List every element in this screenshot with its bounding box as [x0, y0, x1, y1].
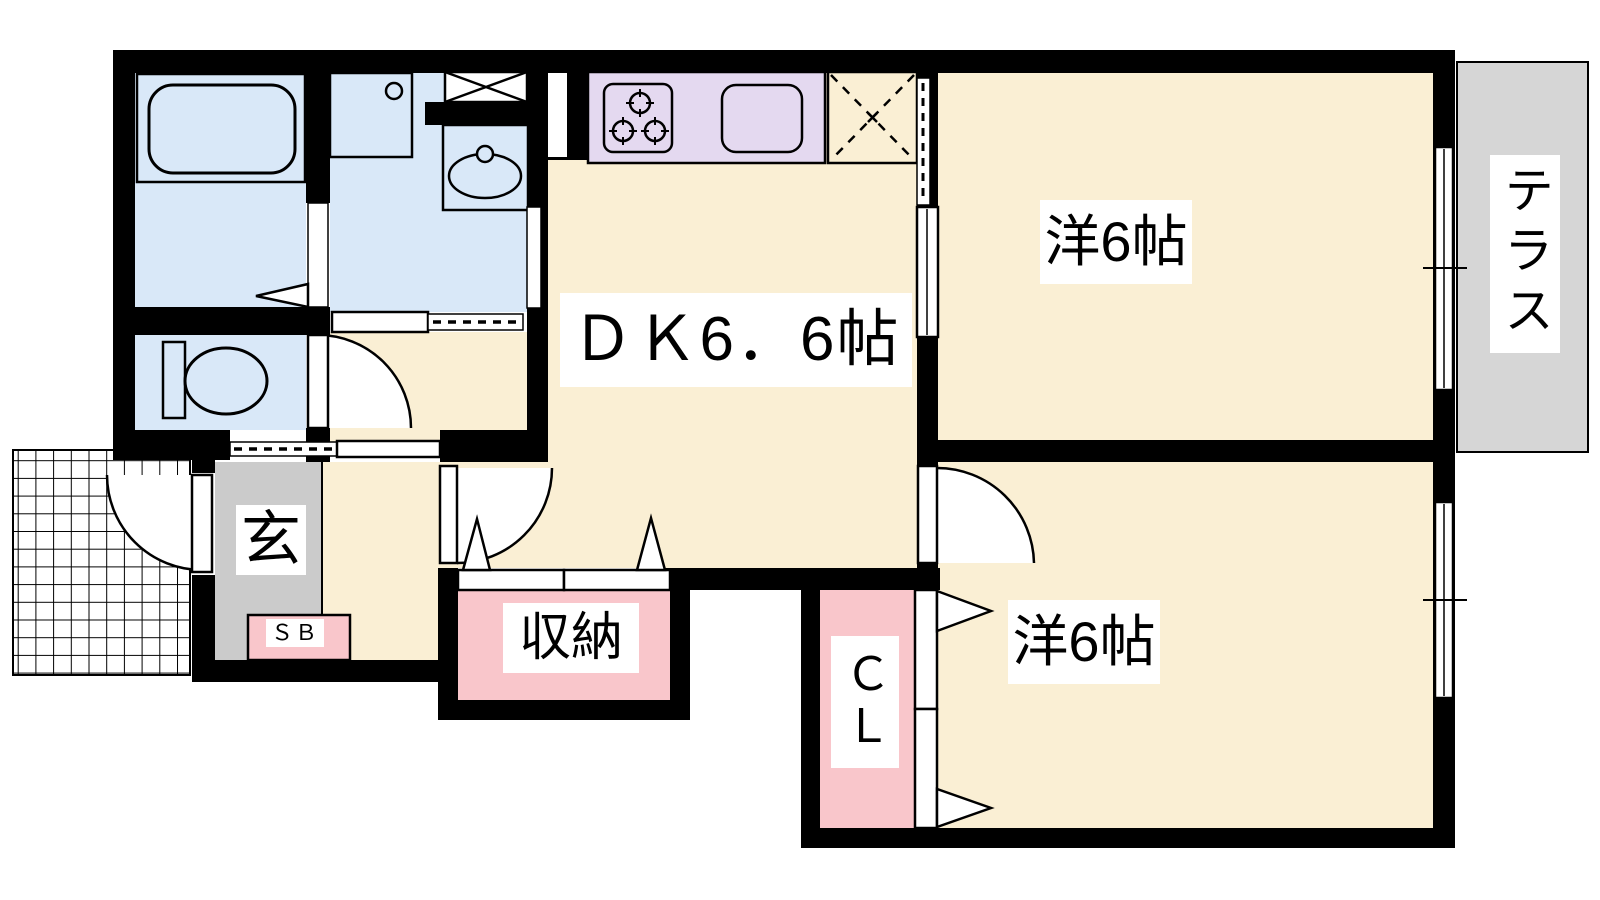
- washroom-sliding-door: [332, 312, 523, 332]
- washing-machine-pan-icon: [330, 73, 412, 157]
- terrace-label: テラス: [1490, 155, 1560, 353]
- laundry-shelf-icon: [445, 72, 527, 102]
- entrance-label: 玄: [236, 505, 306, 575]
- storage-label: 収納: [503, 603, 639, 673]
- bath-door-opening: [308, 203, 328, 307]
- bathroom-floor: [135, 72, 306, 310]
- western-room-bottom-label: 洋6帖: [1008, 600, 1160, 684]
- kitchen-wall-niche: [548, 73, 567, 157]
- toilet-icon: [163, 342, 267, 418]
- western-room-top-label: 洋6帖: [1040, 200, 1192, 284]
- floor-plan-drawing: [0, 0, 1600, 900]
- floor-plan: ＤＫ6．6帖 洋6帖 洋6帖 テラス 玄 ＳＢ 収納 ＣＬ: [0, 0, 1600, 900]
- shoe-box-label: ＳＢ: [266, 619, 324, 647]
- kitchen-counter: [588, 72, 825, 163]
- refrigerator-space-icon: [828, 72, 917, 163]
- vanity-sink-icon: [443, 125, 528, 210]
- entrance-hall-sliding-door: [230, 441, 440, 457]
- washroom-wall-opening: [527, 207, 541, 308]
- closet-label: ＣＬ: [831, 636, 899, 768]
- dk-label: ＤＫ6．6帖: [560, 293, 912, 387]
